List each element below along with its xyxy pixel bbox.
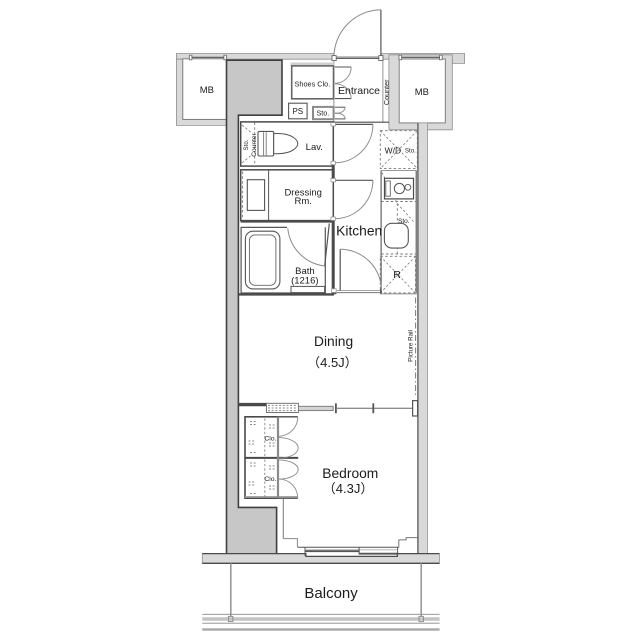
svg-text:Sto.: Sto. [243, 139, 250, 150]
svg-text:W/D: W/D [385, 145, 402, 155]
svg-text:Entrance: Entrance [338, 85, 380, 97]
svg-text:Clo.: Clo. [264, 476, 276, 483]
svg-text:Picture Rail: Picture Rail [408, 330, 415, 362]
svg-text:Dining: Dining [314, 334, 353, 349]
svg-text:Counter: Counter [382, 79, 391, 105]
svg-text:Balcony: Balcony [304, 585, 358, 602]
svg-text:Clo.: Clo. [264, 436, 276, 443]
svg-text:R: R [393, 269, 401, 281]
svg-text:Kitchen: Kitchen [336, 223, 382, 238]
svg-text:MB: MB [200, 85, 214, 96]
svg-text:Sto.: Sto. [398, 218, 410, 225]
svg-text:Shoes Clo.: Shoes Clo. [295, 79, 331, 88]
svg-text:(1216): (1216) [291, 276, 318, 287]
svg-text:Rm.: Rm. [294, 196, 311, 207]
svg-text:（4.5J）: （4.5J） [307, 355, 358, 370]
svg-text:Sto.: Sto. [405, 148, 416, 155]
svg-text:Lav.: Lav. [306, 142, 323, 153]
svg-text:（4.3J）: （4.3J） [323, 481, 374, 496]
svg-text:PS: PS [292, 107, 303, 116]
svg-text:Counter: Counter [251, 132, 258, 156]
svg-text:Sto.: Sto. [317, 108, 330, 117]
svg-text:MB: MB [415, 87, 429, 98]
svg-text:Bedroom: Bedroom [322, 466, 378, 481]
